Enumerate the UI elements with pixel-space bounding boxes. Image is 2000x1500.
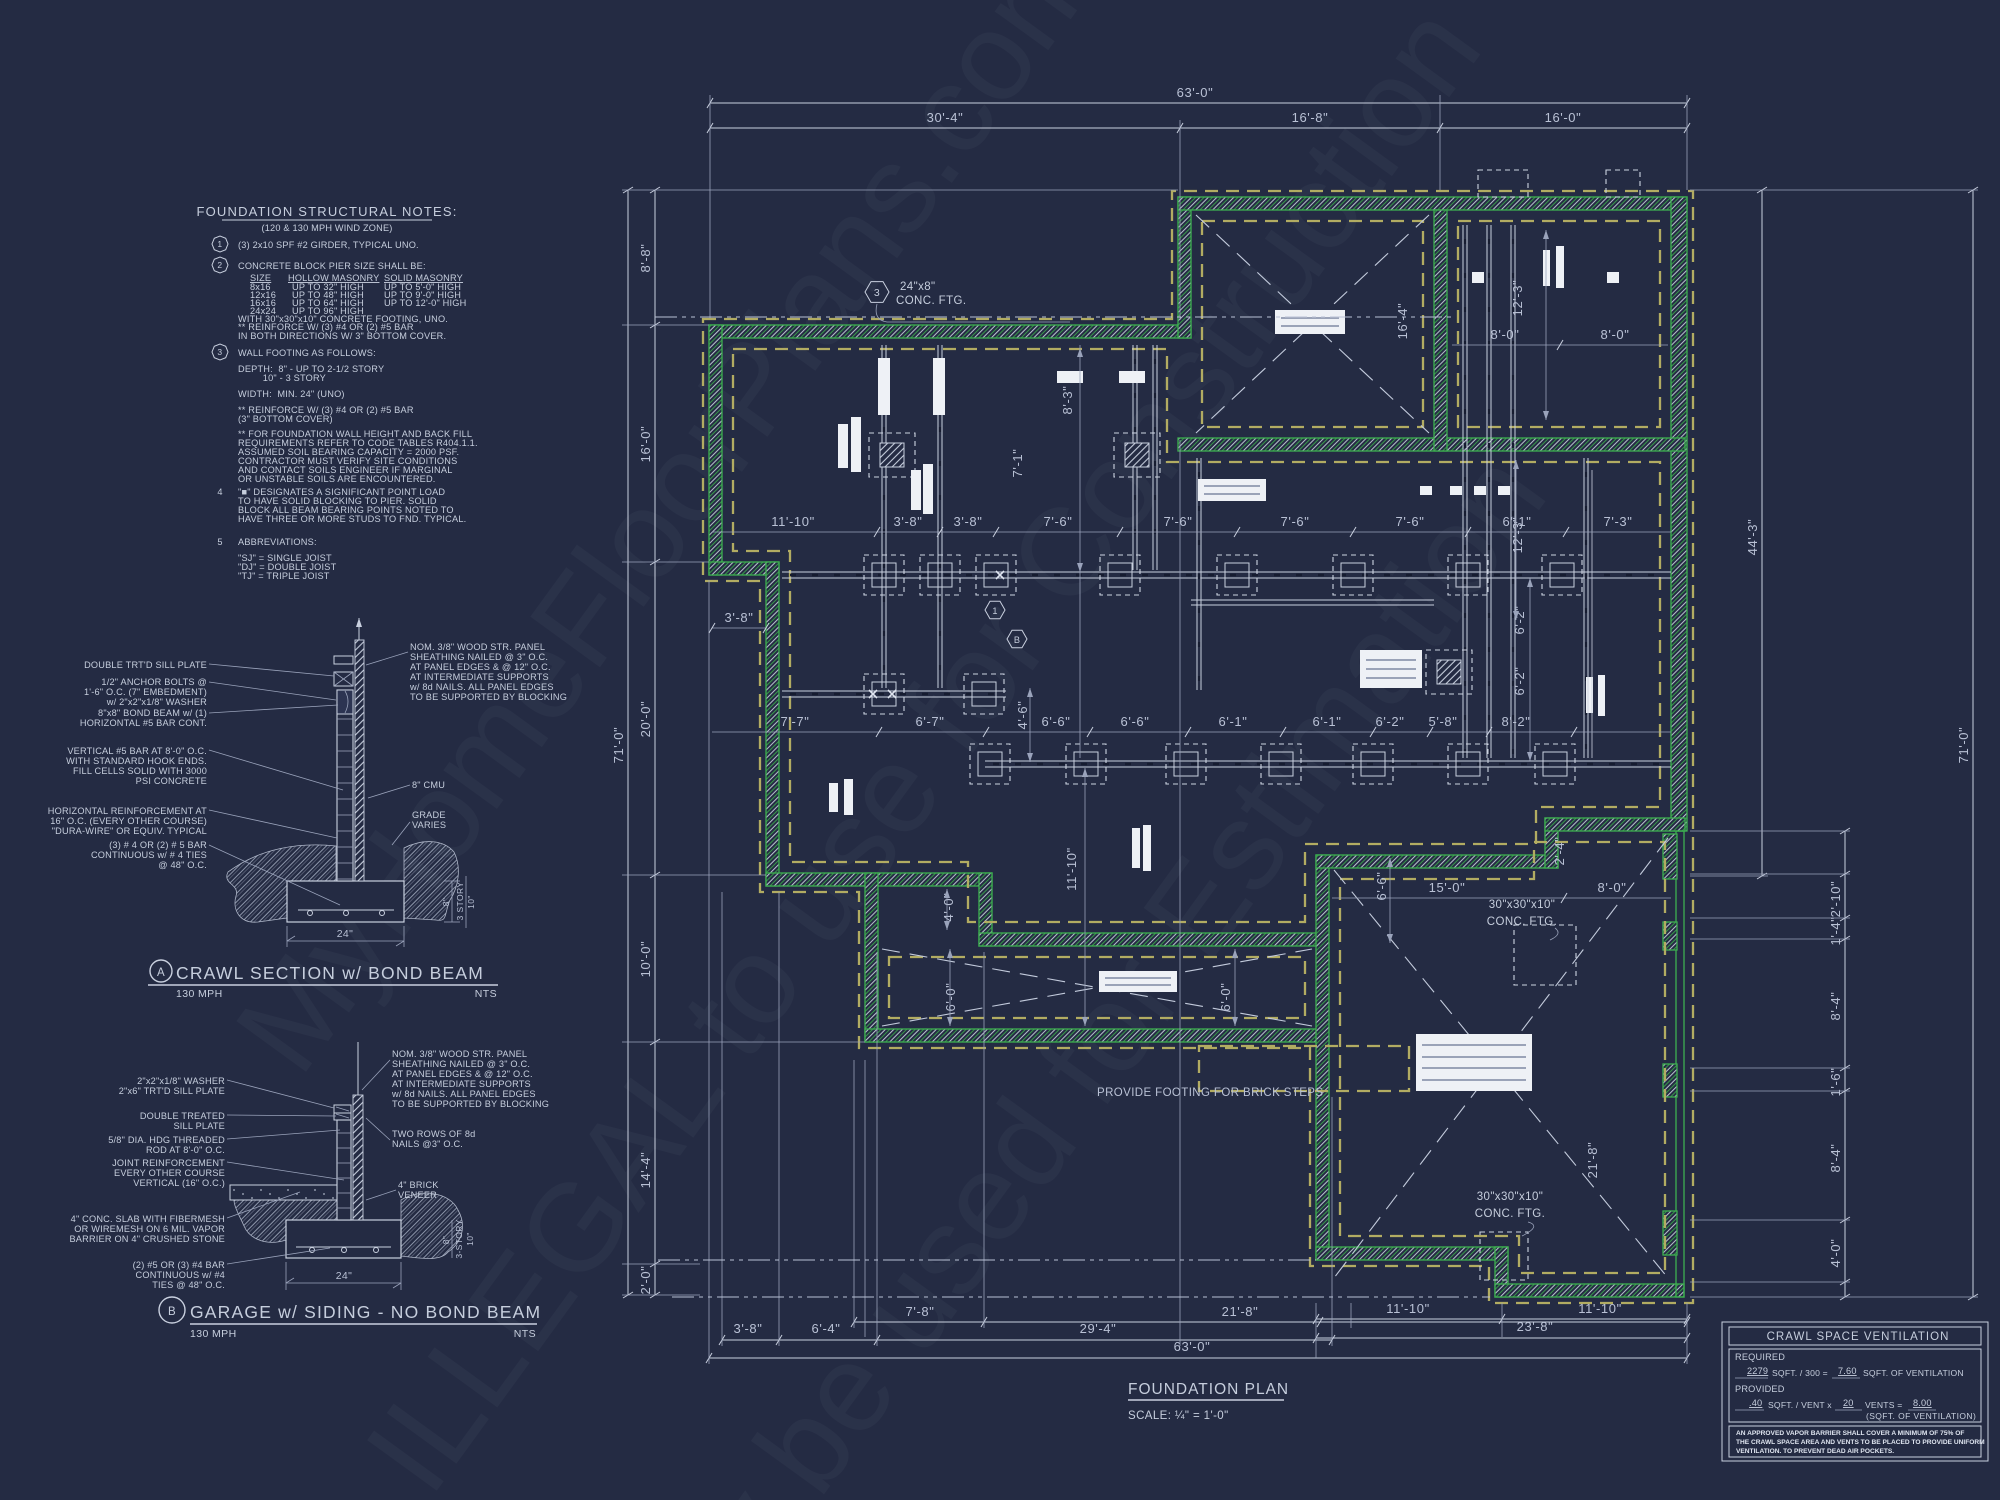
svg-text:PROVIDED: PROVIDED	[1735, 1384, 1785, 1394]
svg-text:7'-3": 7'-3"	[1604, 514, 1633, 529]
svg-text:6'-0": 6'-0"	[943, 983, 958, 1012]
svg-text:12'-3": 12'-3"	[1510, 517, 1525, 554]
svg-text:(120 & 130 MPH WIND ZONE): (120 & 130 MPH WIND ZONE)	[261, 223, 392, 233]
svg-text:3: 3	[874, 287, 880, 299]
svg-text:7'-6": 7'-6"	[1396, 514, 1425, 529]
svg-text:2: 2	[217, 260, 222, 270]
svg-text:5/8" DIA. HDG THREADED: 5/8" DIA. HDG THREADED	[108, 1135, 225, 1145]
svg-text:8.00: 8.00	[1913, 1398, 1932, 1408]
svg-text:10": 10"	[466, 895, 476, 909]
svg-text:FILL CELLS SOLID WITH 3000: FILL CELLS SOLID WITH 3000	[73, 766, 207, 776]
svg-text:7'-6": 7'-6"	[1164, 514, 1193, 529]
svg-text:7'-8": 7'-8"	[906, 1304, 935, 1319]
svg-text:TO BE SUPPORTED BY BLOCKING: TO BE SUPPORTED BY BLOCKING	[392, 1099, 549, 1109]
svg-text:6'-6": 6'-6"	[1121, 714, 1150, 729]
svg-text:12'-3": 12'-3"	[1510, 280, 1525, 317]
svg-text:THE CRAWL SPACE AREA AND VENTS: THE CRAWL SPACE AREA AND VENTS TO BE PLA…	[1736, 1439, 1985, 1446]
svg-text:4'-0": 4'-0"	[1828, 1239, 1843, 1268]
svg-text:3'-8": 3'-8"	[894, 514, 923, 529]
svg-text:8" CMU: 8" CMU	[412, 780, 445, 790]
svg-text:w/ 8d NAILS. ALL PANEL EDGES: w/ 8d NAILS. ALL PANEL EDGES	[409, 682, 554, 692]
svg-text:71'-0": 71'-0"	[1956, 727, 1971, 764]
svg-text:7'-7": 7'-7"	[781, 714, 810, 729]
svg-text:(2) #5 OR (3) #4 BAR: (2) #5 OR (3) #4 BAR	[133, 1260, 225, 1270]
svg-text:8'-0": 8'-0"	[1601, 327, 1630, 342]
svg-text:AT PANEL EDGES & @ 12" O.C.: AT PANEL EDGES & @ 12" O.C.	[392, 1069, 533, 1079]
svg-text:20'-0": 20'-0"	[638, 701, 653, 738]
svg-text:EVERY OTHER COURSE: EVERY OTHER COURSE	[114, 1168, 225, 1178]
svg-text:63'-0": 63'-0"	[1174, 1339, 1211, 1354]
svg-text:8'-4": 8'-4"	[1828, 992, 1843, 1021]
svg-text:w/ 2"x2"x1/8" WASHER: w/ 2"x2"x1/8" WASHER	[106, 697, 207, 707]
svg-text:6'-1": 6'-1"	[1313, 714, 1342, 729]
svg-text:6'-6": 6'-6"	[1374, 872, 1389, 901]
svg-text:3 STORY: 3 STORY	[455, 882, 465, 921]
svg-text:5: 5	[217, 537, 222, 547]
svg-text:1: 1	[217, 239, 222, 249]
svg-text:3: 3	[217, 347, 222, 357]
svg-text:21'-8": 21'-8"	[1222, 1304, 1259, 1319]
svg-text:8": 8"	[441, 1236, 451, 1245]
svg-text:OR WIREMESH ON 6 MIL. VAPOR: OR WIREMESH ON 6 MIL. VAPOR	[74, 1224, 225, 1234]
svg-text:23'-8": 23'-8"	[1517, 1319, 1554, 1334]
svg-text:CRAWL SECTION w/ BOND BEAM: CRAWL SECTION w/ BOND BEAM	[176, 963, 484, 983]
svg-text:3'-8": 3'-8"	[954, 514, 983, 529]
svg-text:@ 48" O.C.: @ 48" O.C.	[158, 860, 207, 870]
svg-text:(SQFT. OF VENTILATION): (SQFT. OF VENTILATION)	[1866, 1411, 1976, 1421]
svg-text:4" BRICK: 4" BRICK	[398, 1180, 439, 1190]
svg-text:NTS: NTS	[514, 1328, 536, 1340]
svg-text:(3" BOTTOM COVER): (3" BOTTOM COVER)	[238, 414, 333, 424]
svg-text:71'-0": 71'-0"	[611, 727, 626, 764]
svg-text:6'-2": 6'-2"	[1512, 606, 1527, 635]
svg-text:SQFT. / 300 =: SQFT. / 300 =	[1772, 1368, 1828, 1378]
svg-text:w/ 8d NAILS. ALL PANEL EDGES: w/ 8d NAILS. ALL PANEL EDGES	[391, 1089, 536, 1099]
svg-text:16'-0": 16'-0"	[638, 426, 653, 463]
svg-text:6'-7": 6'-7"	[916, 714, 945, 729]
svg-text:1/2" ANCHOR BOLTS @: 1/2" ANCHOR BOLTS @	[101, 677, 207, 687]
svg-text:NOM. 3/8" WOOD STR. PANEL: NOM. 3/8" WOOD STR. PANEL	[410, 642, 545, 652]
svg-text:2"x2"x1/8" WASHER: 2"x2"x1/8" WASHER	[137, 1076, 225, 1086]
svg-text:24": 24"	[337, 928, 354, 940]
svg-text:HORIZONTAL #5 BAR CONT.: HORIZONTAL #5 BAR CONT.	[80, 718, 207, 728]
svg-text:29'-4": 29'-4"	[1080, 1321, 1117, 1336]
svg-text:DOUBLE TREATED: DOUBLE TREATED	[140, 1111, 225, 1121]
svg-text:1: 1	[992, 606, 997, 616]
svg-text:OR UNSTABLE SOILS ARE ENCOUNTE: OR UNSTABLE SOILS ARE ENCOUNTERED.	[238, 474, 436, 484]
svg-text:16" O.C. (EVERY OTHER COURSE): 16" O.C. (EVERY OTHER COURSE)	[50, 816, 207, 826]
svg-text:8'-0": 8'-0"	[1491, 327, 1520, 342]
svg-text:SQFT. OF VENTILATION: SQFT. OF VENTILATION	[1863, 1368, 1964, 1378]
svg-text:(3) 2x10 SPF #2 GIRDER, TYPICA: (3) 2x10 SPF #2 GIRDER, TYPICAL UNO.	[238, 240, 419, 250]
svg-text:GRADE: GRADE	[412, 810, 446, 820]
svg-text:2279: 2279	[1747, 1366, 1768, 1376]
svg-text:6'-2": 6'-2"	[1512, 667, 1527, 696]
svg-text:30"x30"x10": 30"x30"x10"	[1489, 899, 1556, 911]
svg-text:PSI CONCRETE: PSI CONCRETE	[136, 776, 207, 786]
svg-text:2"x6" TRT'D SILL PLATE: 2"x6" TRT'D SILL PLATE	[119, 1086, 225, 1096]
svg-text:7'-6": 7'-6"	[1281, 514, 1310, 529]
svg-text:5'-8": 5'-8"	[1429, 714, 1458, 729]
svg-text:A: A	[157, 967, 165, 979]
svg-text:ROD AT 8'-0" O.C.: ROD AT 8'-0" O.C.	[146, 1145, 225, 1155]
svg-text:VENTILATION. TO PREVENT DEAD: VENTILATION. TO PREVENT DEAD AIR POCKETS…	[1736, 1448, 1894, 1455]
svg-text:21'-8": 21'-8"	[1585, 1142, 1600, 1179]
svg-text:CONC. FTG.: CONC. FTG.	[1487, 916, 1557, 928]
svg-text:AN APPROVED VAPOR BARRIER SHAL: AN APPROVED VAPOR BARRIER SHALL COVER A …	[1736, 1430, 1964, 1437]
svg-text:130 MPH: 130 MPH	[176, 988, 223, 1000]
svg-text:HORIZONTAL REINFORCEMENT AT: HORIZONTAL REINFORCEMENT AT	[48, 806, 207, 816]
svg-text:16'-0": 16'-0"	[1545, 110, 1582, 125]
svg-text:3-STORY: 3-STORY	[454, 1219, 464, 1258]
svg-text:CONC. FTG.: CONC. FTG.	[1475, 1208, 1545, 1220]
svg-text:FOUNDATION STRUCTURAL NOTES:: FOUNDATION STRUCTURAL NOTES:	[196, 204, 457, 219]
svg-text:VERTICAL (16" O.C.): VERTICAL (16" O.C.)	[133, 1178, 225, 1188]
svg-text:SHEATHING NAILED @ 3" O.C.: SHEATHING NAILED @ 3" O.C.	[410, 652, 548, 662]
svg-text:GARAGE w/ SIDING - NO BOND BEA: GARAGE w/ SIDING - NO BOND BEAM	[190, 1302, 541, 1322]
svg-text:B: B	[168, 1306, 176, 1318]
svg-text:3'-8": 3'-8"	[734, 1321, 763, 1336]
svg-text:(3) # 4 OR (2) # 5 BAR: (3) # 4 OR (2) # 5 BAR	[109, 840, 207, 850]
svg-text:NAILS @3" O.C.: NAILS @3" O.C.	[392, 1139, 463, 1149]
svg-text:11'-10": 11'-10"	[771, 514, 815, 529]
svg-text:CONCRETE BLOCK PIER SIZE SHALL: CONCRETE BLOCK PIER SIZE SHALL BE:	[238, 261, 426, 271]
svg-text:VENEER: VENEER	[398, 1190, 437, 1200]
svg-text:6'-1": 6'-1"	[1219, 714, 1248, 729]
svg-text:8'-2": 8'-2"	[1502, 714, 1531, 729]
svg-text:4" CONC. SLAB WITH FIBERMESH: 4" CONC. SLAB WITH FIBERMESH	[71, 1214, 225, 1224]
svg-text:8'-4": 8'-4"	[1828, 1144, 1843, 1173]
svg-text:"DURA-WIRE" OR EQUIV. TYPICAL: "DURA-WIRE" OR EQUIV. TYPICAL	[52, 826, 207, 836]
svg-text:SQFT. / VENT x: SQFT. / VENT x	[1768, 1400, 1832, 1410]
svg-text:20: 20	[1843, 1398, 1854, 1408]
svg-text:2'-4": 2'-4"	[1552, 837, 1567, 866]
svg-text:7.60: 7.60	[1838, 1366, 1857, 1376]
svg-text:AT PANEL EDGES & @ 12" O.C.: AT PANEL EDGES & @ 12" O.C.	[410, 662, 551, 672]
svg-text:15'-0": 15'-0"	[1429, 880, 1466, 895]
svg-text:NOM. 3/8" WOOD STR. PANEL: NOM. 3/8" WOOD STR. PANEL	[392, 1049, 527, 1059]
svg-text:JOINT REINFORCEMENT: JOINT REINFORCEMENT	[112, 1158, 225, 1168]
svg-text:6'-4": 6'-4"	[812, 1321, 841, 1336]
svg-text:CONTINUOUS w/ # 4 TIES: CONTINUOUS w/ # 4 TIES	[91, 850, 207, 860]
svg-text:4: 4	[217, 487, 222, 497]
svg-text:24"x8": 24"x8"	[900, 281, 936, 293]
svg-text:.40: .40	[1749, 1398, 1762, 1408]
svg-text:8"x8" BOND BEAM w/ (1): 8"x8" BOND BEAM w/ (1)	[98, 708, 207, 718]
svg-text:11'-10": 11'-10"	[1578, 1301, 1622, 1316]
svg-text:CONTINUOUS w/ #4: CONTINUOUS w/ #4	[136, 1270, 225, 1280]
svg-text:11'-10": 11'-10"	[1386, 1301, 1430, 1316]
svg-text:ABBREVIATIONS:: ABBREVIATIONS:	[238, 537, 317, 547]
svg-text:UP TO 12'-0" HIGH: UP TO 12'-0" HIGH	[384, 298, 466, 308]
svg-text:10" - 3 STORY: 10" - 3 STORY	[238, 373, 326, 383]
svg-text:BARRIER ON 4" CRUSHED STONE: BARRIER ON 4" CRUSHED STONE	[69, 1234, 225, 1244]
svg-text:WALL FOOTING AS FOLLOWS:: WALL FOOTING AS FOLLOWS:	[238, 348, 376, 358]
svg-text:8'-8": 8'-8"	[638, 244, 653, 273]
svg-text:DOUBLE TRT'D SILL PLATE: DOUBLE TRT'D SILL PLATE	[84, 660, 207, 670]
svg-text:8": 8"	[441, 898, 451, 907]
svg-text:"TJ" = TRIPLE JOIST: "TJ" = TRIPLE JOIST	[238, 571, 330, 581]
svg-text:16'-4": 16'-4"	[1395, 303, 1410, 340]
svg-text:SILL PLATE: SILL PLATE	[173, 1121, 225, 1131]
svg-text:3'-8": 3'-8"	[725, 610, 754, 625]
svg-text:14'-4": 14'-4"	[638, 1152, 653, 1189]
svg-text:4'-6": 4'-6"	[1015, 701, 1030, 730]
svg-text:2'-10": 2'-10"	[1828, 881, 1843, 918]
svg-text:8'-0": 8'-0"	[1598, 880, 1627, 895]
svg-text:SHEATHING NAILED @ 3" O.C.: SHEATHING NAILED @ 3" O.C.	[392, 1059, 530, 1069]
svg-text:11'-10": 11'-10"	[1064, 847, 1079, 891]
svg-text:8'-3": 8'-3"	[1060, 386, 1075, 415]
svg-text:1'-6": 1'-6"	[1828, 1068, 1843, 1097]
svg-text:2'-0": 2'-0"	[638, 1266, 653, 1295]
svg-text:6'-0": 6'-0"	[1218, 983, 1233, 1012]
svg-text:10'-0": 10'-0"	[638, 941, 653, 978]
svg-text:130 MPH: 130 MPH	[190, 1328, 237, 1340]
svg-text:1'-6" O.C. (7" EMBEDMENT): 1'-6" O.C. (7" EMBEDMENT)	[84, 687, 207, 697]
svg-text:TO BE SUPPORTED BY BLOCKING: TO BE SUPPORTED BY BLOCKING	[410, 692, 567, 702]
svg-text:24": 24"	[336, 1270, 353, 1282]
svg-text:AT INTERMEDIATE SUPPORTS: AT INTERMEDIATE SUPPORTS	[410, 672, 549, 682]
svg-text:30"x30"x10": 30"x30"x10"	[1477, 1191, 1544, 1203]
svg-text:CONC. FTG.: CONC. FTG.	[896, 295, 966, 307]
svg-text:TWO ROWS OF 8d: TWO ROWS OF 8d	[392, 1129, 475, 1139]
svg-text:VENTS =: VENTS =	[1865, 1400, 1902, 1410]
svg-text:30'-4": 30'-4"	[927, 110, 964, 125]
svg-text:10": 10"	[465, 1232, 475, 1246]
svg-text:CRAWL SPACE VENTILATION: CRAWL SPACE VENTILATION	[1767, 1331, 1950, 1343]
svg-text:IN BOTH DIRECTIONS W/ 3" BOTTO: IN BOTH DIRECTIONS W/ 3" BOTTOM COVER.	[238, 331, 446, 341]
svg-text:VERTICAL #5 BAR AT 8'-0" O.C.: VERTICAL #5 BAR AT 8'-0" O.C.	[67, 746, 207, 756]
svg-text:6'-2": 6'-2"	[1376, 714, 1405, 729]
svg-text:REQUIRED: REQUIRED	[1735, 1352, 1785, 1362]
svg-text:7'-1": 7'-1"	[1010, 449, 1025, 478]
svg-text:VARIES: VARIES	[412, 820, 446, 830]
svg-text:B: B	[1014, 635, 1020, 645]
svg-text:FOUNDATION PLAN: FOUNDATION PLAN	[1128, 1381, 1289, 1398]
svg-text:63'-0": 63'-0"	[1177, 85, 1214, 100]
svg-text:7'-6": 7'-6"	[1044, 514, 1073, 529]
svg-text:44'-3": 44'-3"	[1745, 519, 1760, 556]
svg-text:PROVIDE FOOTING FOR BRICK STEP: PROVIDE FOOTING FOR BRICK STEPS	[1097, 1087, 1323, 1099]
svg-text:TIES @ 48" O.C.: TIES @ 48" O.C.	[152, 1280, 225, 1290]
svg-text:6'-6": 6'-6"	[1042, 714, 1071, 729]
svg-text:WITH STANDARD HOOK ENDS.: WITH STANDARD HOOK ENDS.	[66, 756, 207, 766]
svg-text:SCALE: ¼" = 1'-0": SCALE: ¼" = 1'-0"	[1128, 1410, 1229, 1422]
svg-text:HAVE THREE OR MORE STUDS TO FN: HAVE THREE OR MORE STUDS TO FND. TYPICAL…	[238, 514, 466, 524]
svg-text:AT INTERMEDIATE SUPPORTS: AT INTERMEDIATE SUPPORTS	[392, 1079, 531, 1089]
svg-text:16'-8": 16'-8"	[1292, 110, 1329, 125]
svg-text:NTS: NTS	[475, 988, 497, 1000]
svg-text:WIDTH: MIN. 24" (UNO): WIDTH: MIN. 24" (UNO)	[238, 389, 345, 399]
